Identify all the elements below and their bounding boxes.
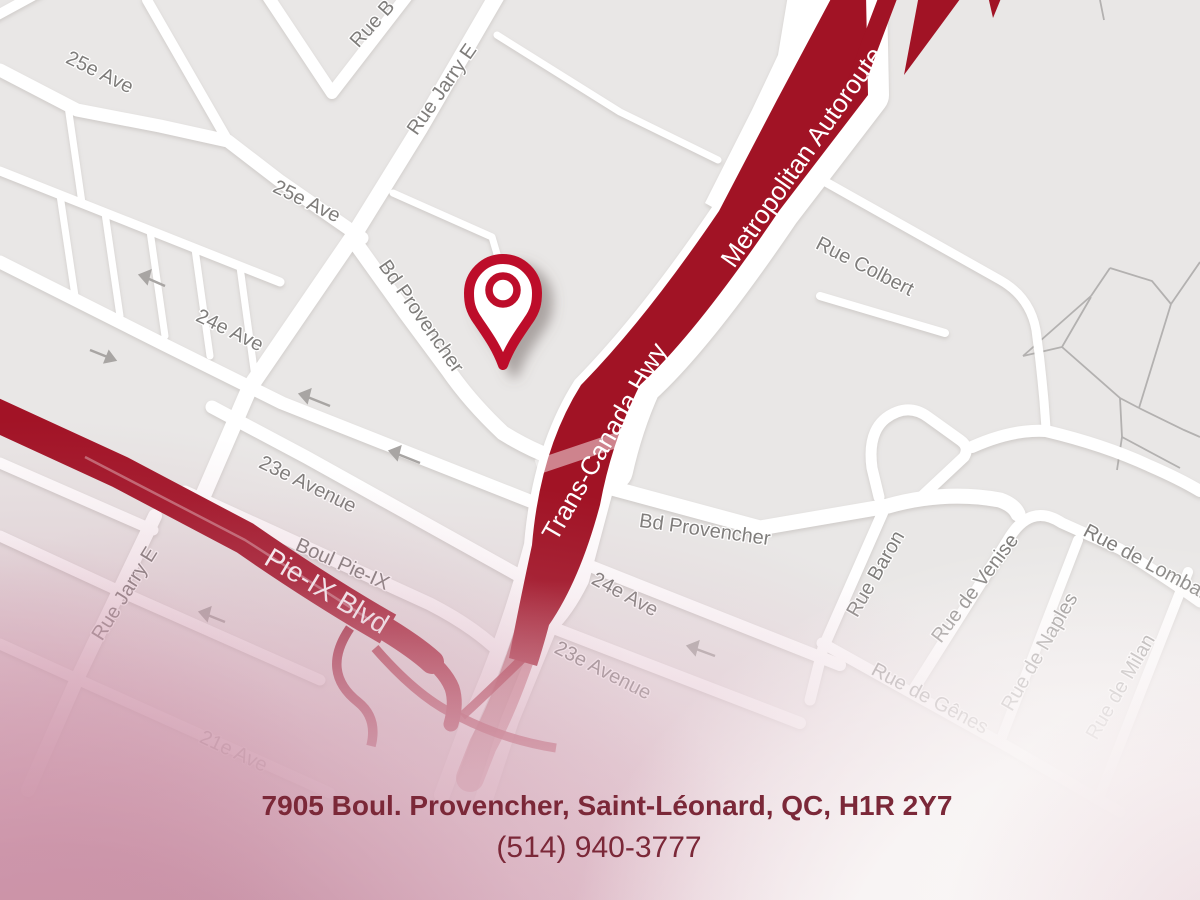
svg-text:7905 Boul. Provencher, Saint-L: 7905 Boul. Provencher, Saint-Léonard, QC… xyxy=(262,790,953,821)
svg-text:(514) 940-3777: (514) 940-3777 xyxy=(496,831,701,864)
